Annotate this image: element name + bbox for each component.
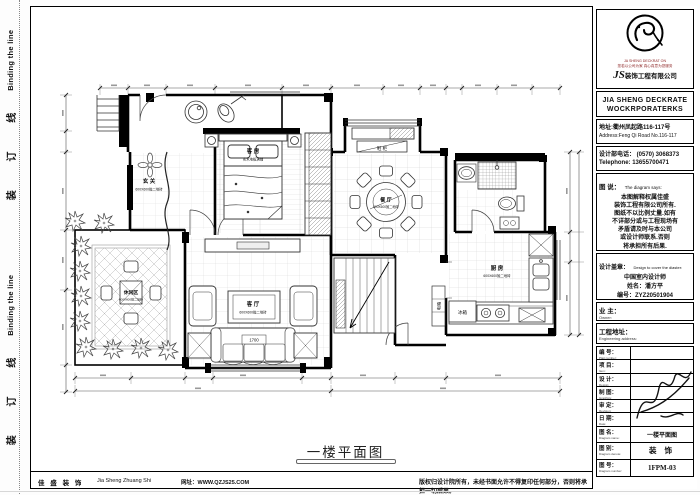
floor-plan: 玄 关 600X600抛二地砖 客 房 实木地板满铺 餐 厅 600X600抛二… [0, 0, 700, 494]
guest-bed [219, 134, 287, 219]
label-dining-floor: 600X600抛二地砖 [373, 204, 399, 209]
label-leisure: 休闲区 [123, 289, 139, 296]
label-living-floor: 600X600抛二地砖 [239, 310, 267, 315]
label-shoe-cabinet: 鞋 柜 [377, 145, 388, 152]
label-guest: 客 房 [246, 147, 260, 155]
label-kitchen: 厨 房 [491, 264, 504, 272]
label-entry-floor: 600X600抛二地砖 [135, 187, 163, 192]
label-kitchen-floor: 600X600抛二地砖 [483, 273, 511, 278]
label-power-box: 电箱 [436, 302, 443, 310]
label-entry: 玄 关 [143, 177, 156, 185]
label-living: 客 厅 [246, 300, 260, 308]
tv [237, 242, 269, 249]
label-sofa-dim: 1700 [249, 338, 259, 343]
drawing-sheet: { "binding": { "cn": "装 订 线", "en": "Bin… [0, 0, 700, 494]
stairs [334, 258, 395, 333]
label-leisure-floor: 600X600抛二地砖 [119, 297, 143, 302]
entry-steps [97, 95, 119, 131]
label-guest-floor: 实木地板满铺 [243, 157, 264, 162]
label-dining: 餐 厅 [379, 197, 391, 204]
wardrobe [305, 133, 331, 235]
label-fridge: 冰箱 [458, 309, 467, 316]
bath-strip-fixtures [185, 95, 282, 125]
